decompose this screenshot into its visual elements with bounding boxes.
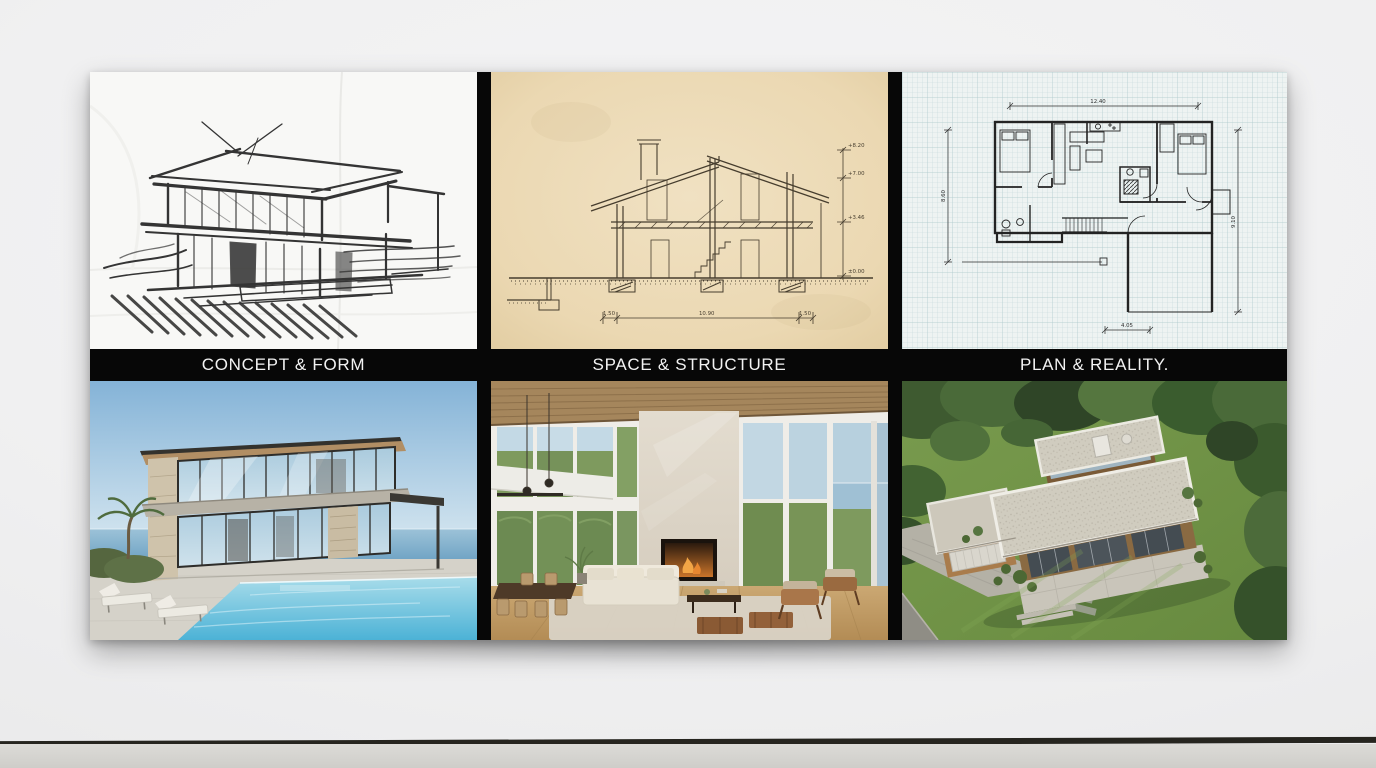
section-span-annotation-1: 10.90	[699, 311, 715, 317]
plan-dimension-top: 12.40	[1090, 99, 1106, 105]
floor-plan-panel: 12.40 8.60 9.10 4.05	[902, 72, 1287, 349]
caption-space-structure: SPACE & STRUCTURE	[491, 349, 888, 381]
pencil-sketch-drawing	[90, 72, 477, 349]
villa-exterior-photo	[90, 381, 477, 640]
section-span-annotation-2: 1.50	[799, 311, 812, 317]
plan-dimension-left: 8.60	[941, 189, 947, 202]
caption-concept-form: CONCEPT & FORM	[90, 349, 477, 381]
plan-dimension-bottom: 4.05	[1121, 323, 1133, 329]
gallery-floor	[0, 744, 1376, 768]
gallery-scene: +8.20 +7.00 +3.46 ±0.00 1.50 10.90 1.50	[0, 0, 1376, 768]
aerial-render	[902, 381, 1287, 640]
section-drawing-panel: +8.20 +7.00 +3.46 ±0.00 1.50 10.90 1.50	[491, 72, 888, 349]
aerial-photo	[902, 381, 1287, 640]
section-level-annotation-0: +8.20	[848, 143, 865, 149]
caption-plan-reality: PLAN & REALITY.	[902, 349, 1287, 381]
section-span-annotation-0: 1.50	[603, 311, 616, 317]
section-level-annotation-2: +3.46	[848, 215, 865, 221]
plan-dimension-right: 9.10	[1231, 215, 1237, 228]
section-level-annotation-1: +7.00	[848, 171, 865, 177]
interior-photo	[491, 381, 888, 640]
section-level-annotation-3: ±0.00	[848, 269, 865, 275]
architecture-triptych-panel: +8.20 +7.00 +3.46 ±0.00 1.50 10.90 1.50	[90, 72, 1287, 640]
sketch-panel	[90, 72, 477, 349]
floor-plan-drawing: 12.40 8.60 9.10 4.05	[902, 72, 1287, 349]
villa-exterior-render	[90, 381, 477, 640]
interior-render	[491, 381, 888, 640]
section-drawing: +8.20 +7.00 +3.46 ±0.00 1.50 10.90 1.50	[491, 72, 888, 349]
